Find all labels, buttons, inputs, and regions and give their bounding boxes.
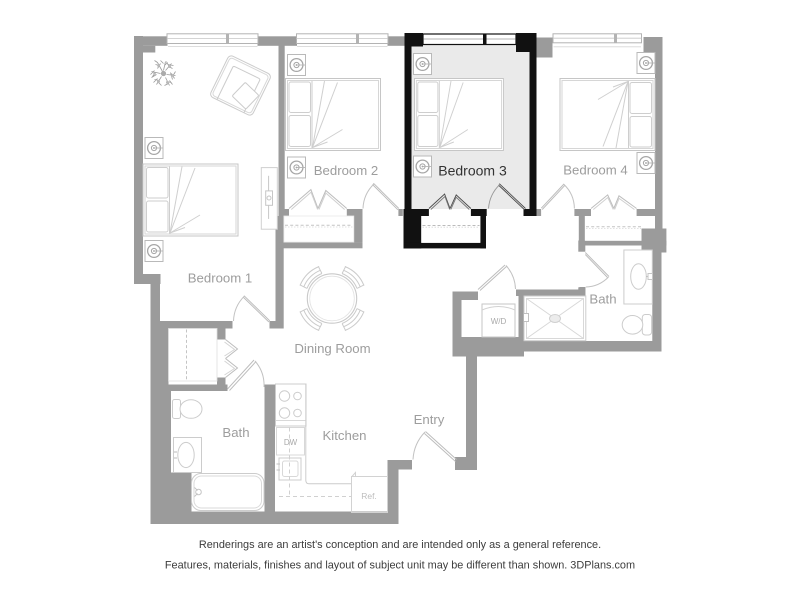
svg-text:Dining Room: Dining Room [294,341,370,356]
svg-text:Bedroom 1: Bedroom 1 [188,271,253,286]
svg-text:Bath: Bath [222,425,249,440]
svg-text:Kitchen: Kitchen [323,428,367,443]
svg-text:W/D: W/D [491,317,507,326]
svg-text:Features, materials, finishes: Features, materials, finishes and layout… [165,560,635,572]
svg-text:Ref.: Ref. [361,491,377,501]
svg-text:Bedroom 4: Bedroom 4 [563,163,628,178]
svg-text:Bedroom 3: Bedroom 3 [438,163,507,179]
svg-text:Renderings are an artist's con: Renderings are an artist's conception an… [199,539,601,551]
svg-text:DW: DW [284,438,298,447]
svg-text:Bath: Bath [589,292,616,307]
svg-text:Entry: Entry [414,412,445,427]
svg-text:Bedroom 2: Bedroom 2 [314,163,379,178]
